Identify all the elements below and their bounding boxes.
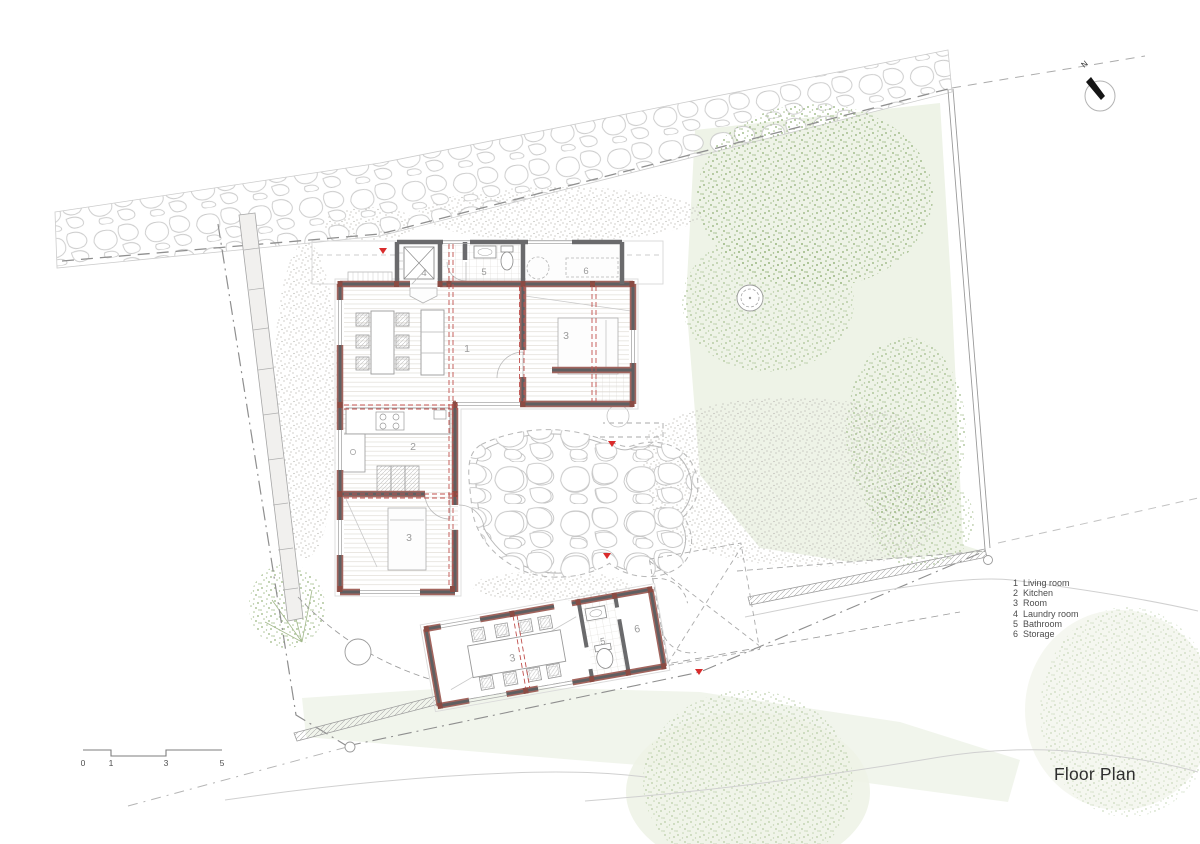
storage-label: 6 bbox=[583, 266, 588, 277]
legend-item-laundry: 4Laundry room bbox=[1011, 609, 1079, 619]
stepping-circle bbox=[345, 639, 371, 665]
north-label: N bbox=[1080, 59, 1090, 70]
entry-bench bbox=[348, 272, 392, 282]
survey-point-sw bbox=[345, 742, 355, 752]
legend-item-bathroom: 5Bathroom bbox=[1011, 619, 1079, 629]
north-needle bbox=[1086, 77, 1105, 100]
well-feature bbox=[737, 285, 763, 311]
scale-tick-0: 0 bbox=[81, 758, 86, 768]
site-plan-drawing: 1 2 3 3 4 5 6 bbox=[0, 0, 1200, 844]
page-title: Floor Plan bbox=[1054, 764, 1136, 785]
bed-east bbox=[558, 318, 618, 374]
bathroom-label: 5 bbox=[481, 267, 486, 278]
dining-set bbox=[356, 311, 409, 374]
legend-item-kitchen: 2Kitchen bbox=[1011, 588, 1079, 598]
room-legend: 1Living room 2Kitchen 3Room 4Laundry roo… bbox=[1011, 578, 1079, 639]
survey-point-se bbox=[984, 556, 993, 565]
room-south-label: 3 bbox=[406, 532, 412, 544]
floor-plan-page: 1 2 3 3 4 5 6 bbox=[0, 0, 1200, 844]
legend-item-living: 1Living room bbox=[1011, 578, 1079, 588]
laundry-label: 4 bbox=[421, 268, 426, 279]
kitchen-label: 2 bbox=[410, 441, 416, 453]
stairs bbox=[374, 466, 424, 493]
scale-tick-3: 3 bbox=[164, 758, 169, 768]
scale-bar: 0 1 3 5 bbox=[81, 750, 225, 768]
living-room-label: 1 bbox=[464, 343, 470, 355]
legend-item-room: 3Room bbox=[1011, 598, 1079, 608]
stone-patio bbox=[469, 430, 698, 578]
scale-tick-1: 1 bbox=[109, 758, 114, 768]
north-arrow: N bbox=[1080, 59, 1115, 111]
legend-item-storage: 6Storage bbox=[1011, 629, 1079, 639]
island-cabinet bbox=[421, 310, 444, 375]
scale-tick-5: 5 bbox=[220, 758, 225, 768]
room-east-label: 3 bbox=[563, 330, 569, 342]
